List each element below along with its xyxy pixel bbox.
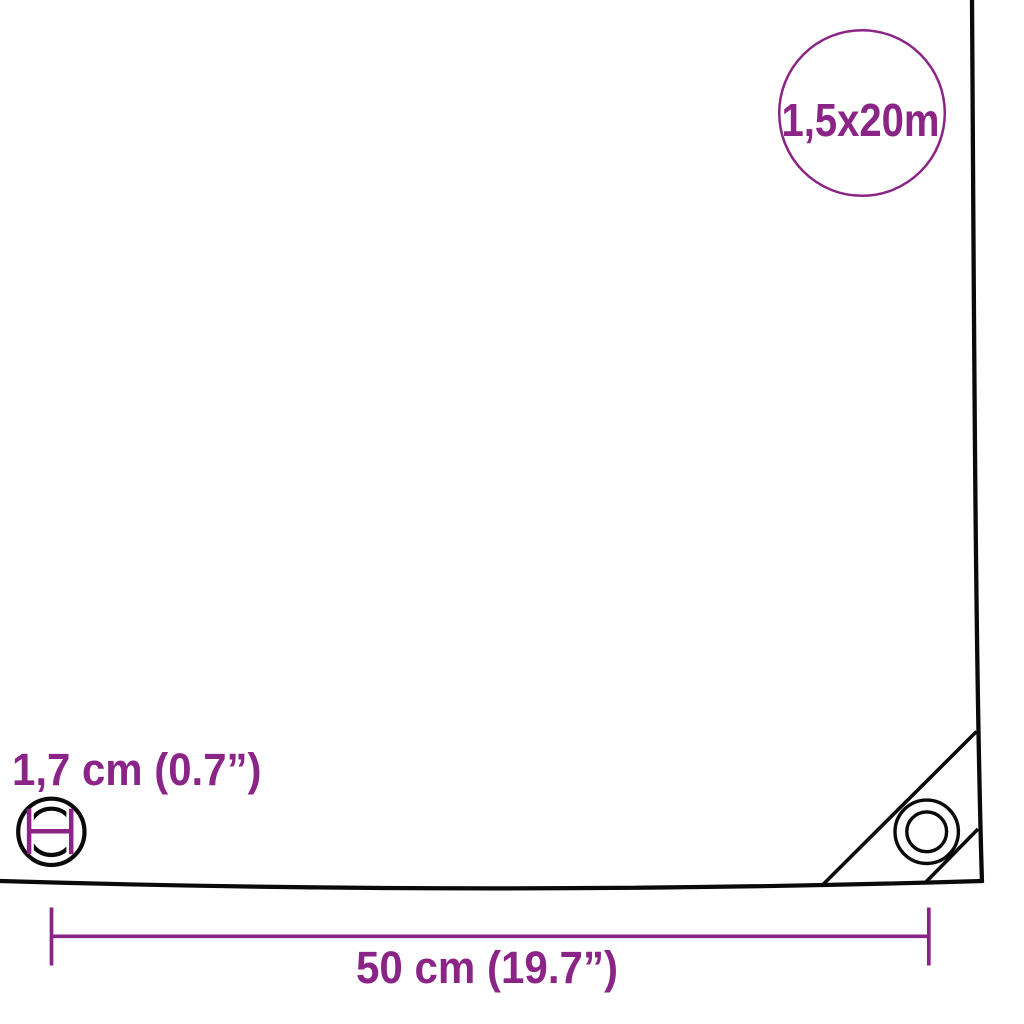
svg-text:1,7 cm (0.7”): 1,7 cm (0.7”) [12, 744, 262, 795]
svg-text:1,5x20m: 1,5x20m [782, 94, 940, 146]
svg-text:50 cm (19.7”): 50 cm (19.7”) [356, 942, 618, 993]
